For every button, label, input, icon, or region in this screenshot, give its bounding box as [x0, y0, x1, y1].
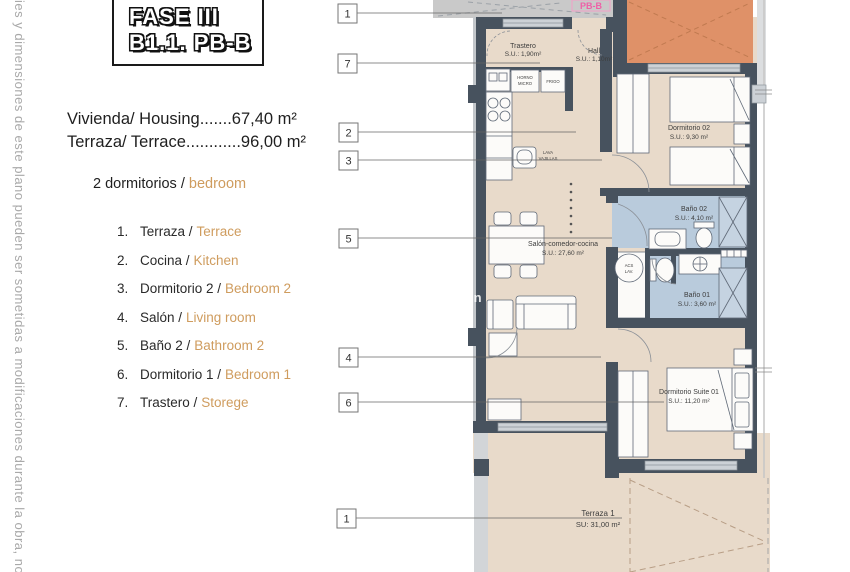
svg-text:6: 6: [345, 398, 351, 410]
label-salon: Salón-comedor-cocina: [528, 241, 598, 248]
svg-text:4: 4: [345, 353, 351, 365]
svg-text:2: 2: [345, 128, 351, 140]
callout-terraza-top: 1: [338, 4, 357, 23]
label-bano01: Baño 01: [684, 292, 710, 299]
svg-text:SU: 31,00 m²: SU: 31,00 m²: [576, 520, 621, 529]
callout-cocina: 2: [339, 123, 358, 142]
svg-text:LAV.: LAV.: [625, 269, 633, 274]
svg-text:MICRO: MICRO: [518, 81, 533, 86]
callout-bano2: 5: [339, 229, 358, 248]
unit-tag-text: PB-B: [580, 1, 602, 11]
callout-salon: 4: [339, 348, 358, 367]
label-lavavajillas: LAVA: [543, 150, 553, 155]
watermark-fragment: in: [470, 290, 482, 305]
label-acs: ACS: [625, 263, 634, 268]
floor-plan-sheet: ies y dimensiones de este plano pueden s…: [0, 0, 850, 572]
label-suite: Dormitorio Suite 01: [659, 389, 719, 396]
callout-dormitorio1: 6: [339, 393, 358, 412]
callout-terraza-bottom: 1: [337, 509, 356, 528]
svg-text:7: 7: [344, 59, 350, 71]
label-frigo: FRIGO: [546, 79, 560, 84]
svg-text:S.U.: 1,10m²: S.U.: 1,10m²: [576, 56, 613, 63]
label-terraza1: Terraza 1: [581, 509, 615, 518]
svg-text:S.U.: 1,90m²: S.U.: 1,90m²: [505, 51, 542, 58]
svg-text:S.U.: 9,30 m²: S.U.: 9,30 m²: [670, 134, 709, 141]
svg-text:VAJILLAS: VAJILLAS: [539, 156, 558, 161]
svg-text:1: 1: [344, 9, 350, 21]
label-dormitorio02: Dormitorio 02: [668, 125, 710, 132]
svg-text:1: 1: [343, 514, 349, 526]
floor-plan-drawing: 1 7 2 3 5 4 6: [0, 0, 850, 572]
svg-text:3: 3: [345, 156, 351, 168]
upper-terrace: [627, 0, 753, 63]
svg-text:S.U.: 3,60 m²: S.U.: 3,60 m²: [678, 301, 717, 308]
label-horno-micro: HORNO: [517, 75, 533, 80]
callout-trastero: 7: [338, 54, 357, 73]
label-hall: Hall: [588, 48, 601, 55]
label-bano02: Baño 02: [681, 206, 707, 213]
svg-text:S.U.: 4,10 m²: S.U.: 4,10 m²: [675, 215, 714, 222]
svg-text:S.U.: 27,60 m²: S.U.: 27,60 m²: [542, 250, 585, 257]
label-trastero: Trastero: [510, 43, 536, 50]
svg-text:5: 5: [345, 234, 351, 246]
callout-dormitorio2: 3: [339, 151, 358, 170]
svg-text:S.U.: 11,20 m²: S.U.: 11,20 m²: [668, 398, 710, 405]
callout-boxes: 1 7 2 3 5 4 6: [337, 4, 358, 528]
